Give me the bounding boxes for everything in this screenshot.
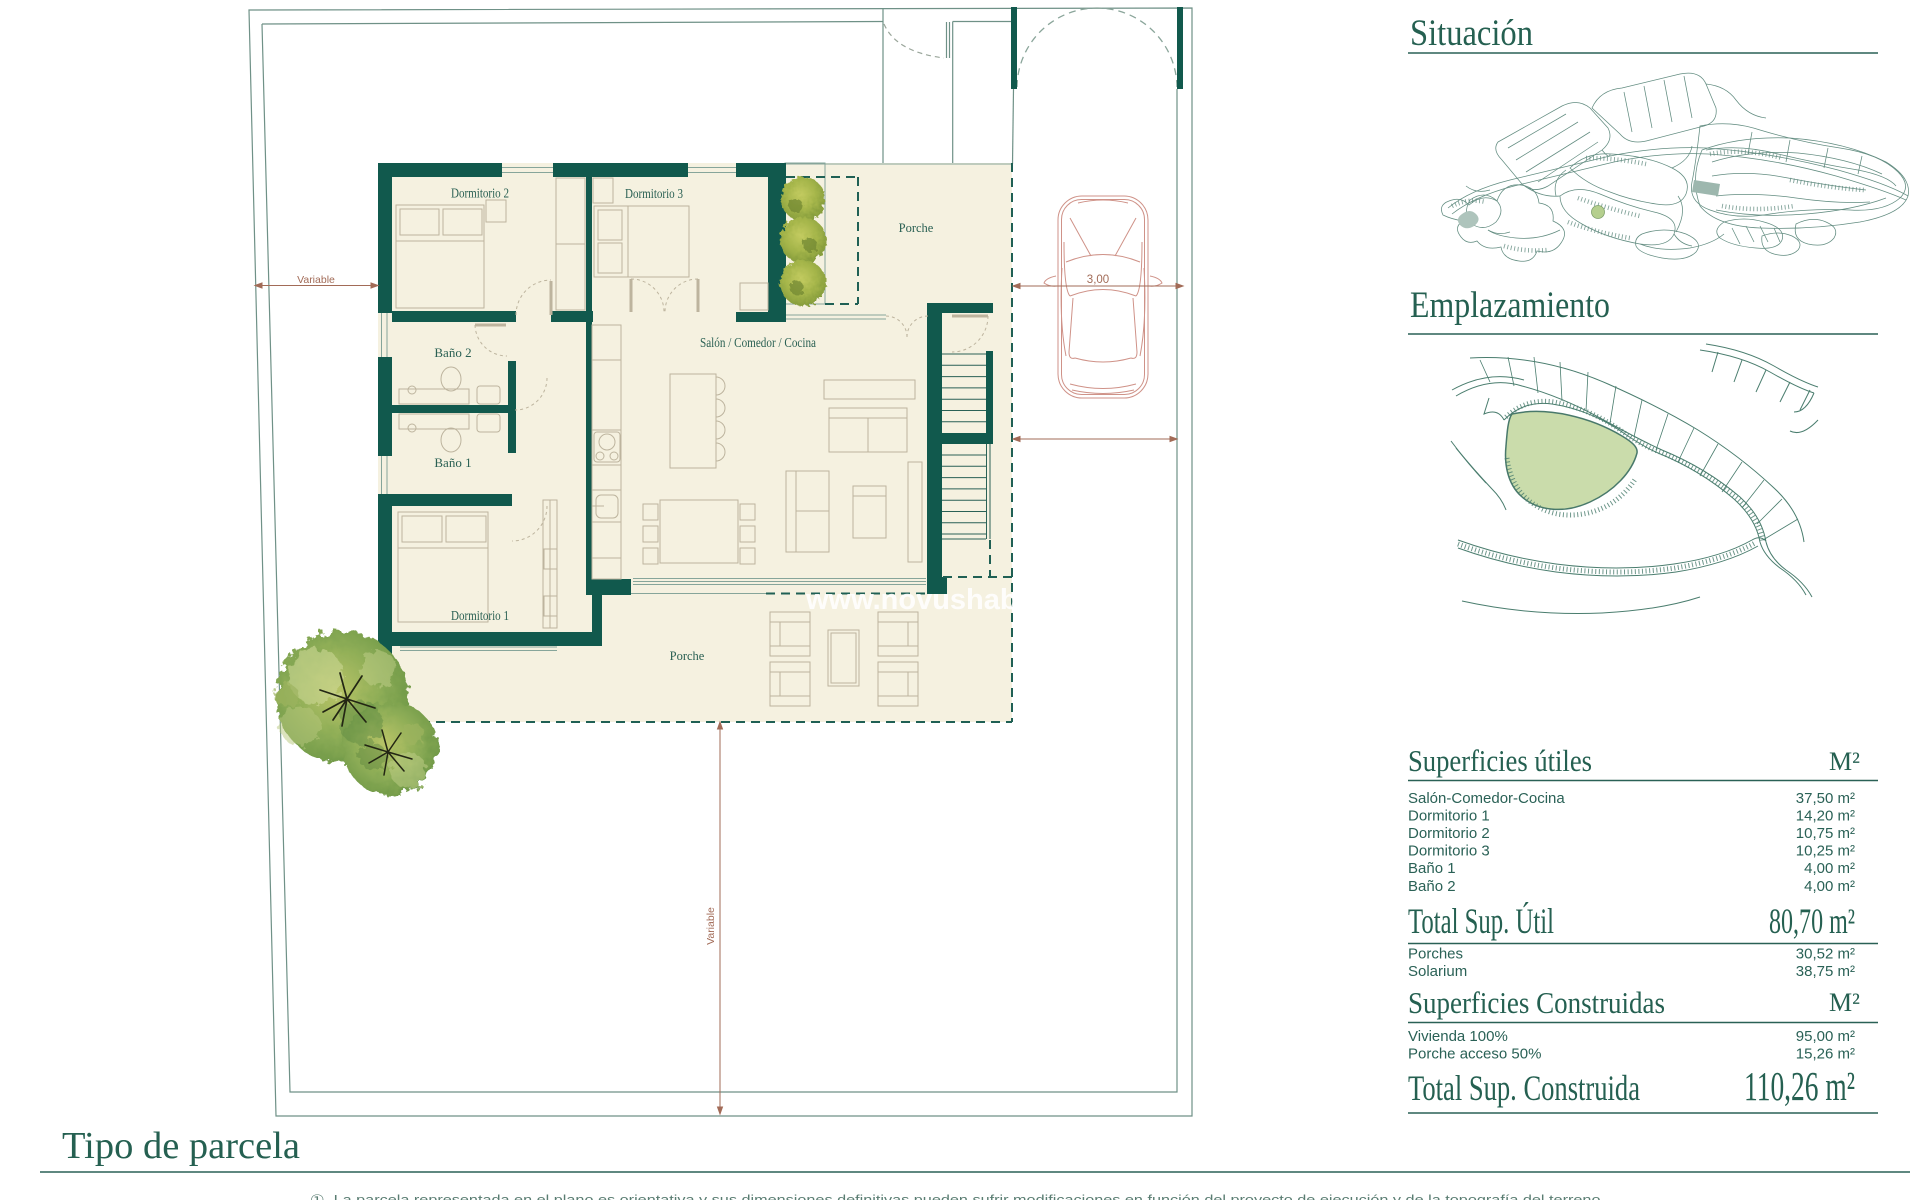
svg-text:Dormitorio 1: Dormitorio 1 [1408, 808, 1490, 825]
svg-text:Dormitorio 2: Dormitorio 2 [1408, 825, 1490, 842]
svg-text:Superficies Construidas: Superficies Construidas [1408, 985, 1665, 1020]
svg-text:Porches: Porches [1408, 946, 1463, 963]
svg-text:Variable: Variable [705, 907, 717, 945]
svg-text:38,75 m²: 38,75 m² [1796, 963, 1855, 980]
svg-text:30,52 m²: 30,52 m² [1796, 946, 1855, 963]
svg-text:3,00: 3,00 [1087, 274, 1109, 286]
svg-text:Baño 2: Baño 2 [434, 345, 471, 360]
svg-text:Situación: Situación [1410, 13, 1533, 54]
svg-text:Salón / Comedor / Cocina: Salón / Comedor / Cocina [700, 335, 816, 350]
svg-text:Total Sup. Útil: Total Sup. Útil [1408, 901, 1554, 941]
svg-text:4,00 m²: 4,00 m² [1804, 860, 1855, 877]
svg-text:Superficies útiles: Superficies útiles [1408, 743, 1592, 778]
svg-text:Emplazamiento: Emplazamiento [1410, 285, 1610, 326]
svg-text:95,00 m²: 95,00 m² [1796, 1028, 1855, 1045]
svg-text:Variable: Variable [297, 274, 335, 286]
svg-text:4,00 m²: 4,00 m² [1804, 878, 1855, 895]
svg-text:Baño 1: Baño 1 [1408, 860, 1456, 877]
svg-text:Solarium: Solarium [1408, 963, 1467, 980]
svg-text:Vivienda 100%: Vivienda 100% [1408, 1028, 1508, 1045]
svg-text:Baño 2: Baño 2 [1408, 878, 1456, 895]
svg-text:Tipo de parcela: Tipo de parcela [62, 1125, 300, 1167]
svg-text:Porche: Porche [899, 221, 934, 235]
svg-text:Dormitorio 1: Dormitorio 1 [451, 609, 509, 624]
svg-text:Porche acceso 50%: Porche acceso 50% [1408, 1046, 1541, 1063]
svg-text:www.novushabitat.com: www.novushabitat.com [805, 584, 1129, 616]
svg-text:14,20 m²: 14,20 m² [1796, 808, 1855, 825]
svg-text:10,75 m²: 10,75 m² [1796, 825, 1855, 842]
svg-text:Baño 1: Baño 1 [434, 455, 471, 470]
svg-text:110,26 m²: 110,26 m² [1744, 1063, 1855, 1109]
svg-text:Porche: Porche [670, 649, 705, 663]
svg-text:Dormitorio 2: Dormitorio 2 [451, 187, 509, 202]
svg-text:15,26 m²: 15,26 m² [1796, 1046, 1855, 1063]
svg-text:M²: M² [1829, 747, 1860, 776]
svg-text:Dormitorio 3: Dormitorio 3 [1408, 843, 1490, 860]
svg-text:80,70 m²: 80,70 m² [1769, 901, 1855, 941]
svg-text:Dormitorio 3: Dormitorio 3 [625, 187, 683, 202]
svg-text:Total Sup. Construida: Total Sup. Construida [1408, 1068, 1640, 1108]
svg-text:Salón-Comedor-Cocina: Salón-Comedor-Cocina [1408, 790, 1565, 807]
svg-text:① La parcela representada en: ① La parcela representada en el plano es… [310, 1192, 1605, 1200]
svg-text:37,50 m²: 37,50 m² [1796, 790, 1855, 807]
svg-text:M²: M² [1829, 988, 1860, 1017]
svg-text:10,25 m²: 10,25 m² [1796, 843, 1855, 860]
